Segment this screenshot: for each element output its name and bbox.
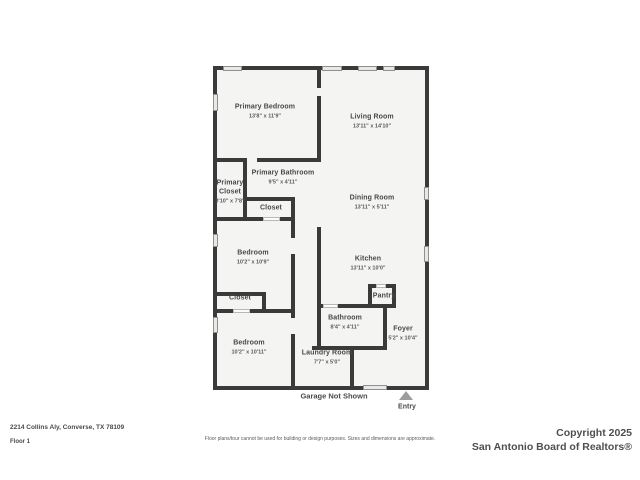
- wall: [291, 334, 295, 386]
- room-label-bedroom-2: Bedroom 10'2" x 10'11": [231, 340, 266, 357]
- window: [223, 66, 242, 71]
- wall: [317, 70, 321, 88]
- wall: [383, 304, 387, 350]
- window: [383, 66, 395, 71]
- room-label-primary-closet: Primary Closet 3'10" x 7'8": [208, 179, 252, 204]
- floor-number-label: Floor 1: [10, 439, 30, 445]
- window: [358, 66, 377, 71]
- room-label-bedroom-1: Bedroom 10'2" x 10'9": [237, 250, 269, 267]
- wall: [250, 309, 266, 313]
- wall: [386, 284, 396, 288]
- wall: [338, 304, 396, 308]
- window: [322, 66, 342, 71]
- pantry-door: [376, 284, 386, 288]
- wall: [317, 227, 321, 346]
- room-label-laundry-room: Laundry Room 7'7" x 5'0": [302, 350, 353, 367]
- room-label-closet-2: Closet: [229, 295, 251, 304]
- closet-door: [233, 309, 250, 313]
- room-label-primary-bathroom: Primary Bathroom 9'5" x 4'11": [252, 170, 315, 187]
- room-label-living-room: Living Room 13'11" x 14'10": [350, 114, 394, 131]
- window: [424, 246, 429, 262]
- wall: [217, 217, 263, 221]
- wall: [217, 309, 233, 313]
- wall: [217, 158, 244, 162]
- closet-door: [263, 217, 280, 221]
- entry-door-opening: [363, 385, 387, 390]
- room-label-foyer: Foyer 5'2" x 10'4": [388, 326, 417, 343]
- copyright-watermark: Copyright 2025 San Antonio Board of Real…: [472, 427, 632, 455]
- wall: [317, 96, 321, 159]
- disclaimer-text: Floor plans/tour cannot be used for buil…: [205, 436, 435, 442]
- window: [213, 234, 218, 247]
- garage-note: Garage Not Shown: [300, 392, 367, 401]
- window: [213, 317, 218, 333]
- entry-arrow-icon: [399, 391, 413, 400]
- room-label-primary-bedroom: Primary Bedroom 13'8" x 11'9": [235, 104, 295, 121]
- entry-label: Entry: [398, 404, 416, 411]
- property-address: 2214 Collins Aly, Converse, TX 78109: [10, 424, 124, 431]
- wall: [368, 284, 376, 288]
- wall: [257, 158, 321, 162]
- room-label-closet: Closet: [260, 205, 282, 214]
- copyright-line-2: San Antonio Board of Realtors®: [472, 441, 632, 455]
- wall: [291, 197, 295, 238]
- floor-plan-page: Primary Bedroom 13'8" x 11'9" Living Roo…: [0, 0, 640, 480]
- room-label-kitchen: Kitchen 13'11" x 10'0": [350, 256, 385, 273]
- window: [213, 94, 218, 111]
- room-label-dining-room: Dining Room 13'11" x 5'11": [350, 195, 395, 212]
- room-label-bathroom: Bathroom 8'4" x 4'11": [328, 315, 362, 332]
- wall: [266, 309, 295, 313]
- window: [424, 187, 429, 200]
- room-label-pantry: Pantry: [373, 293, 395, 302]
- bathroom-door: [323, 304, 338, 308]
- copyright-line-1: Copyright 2025: [472, 427, 632, 441]
